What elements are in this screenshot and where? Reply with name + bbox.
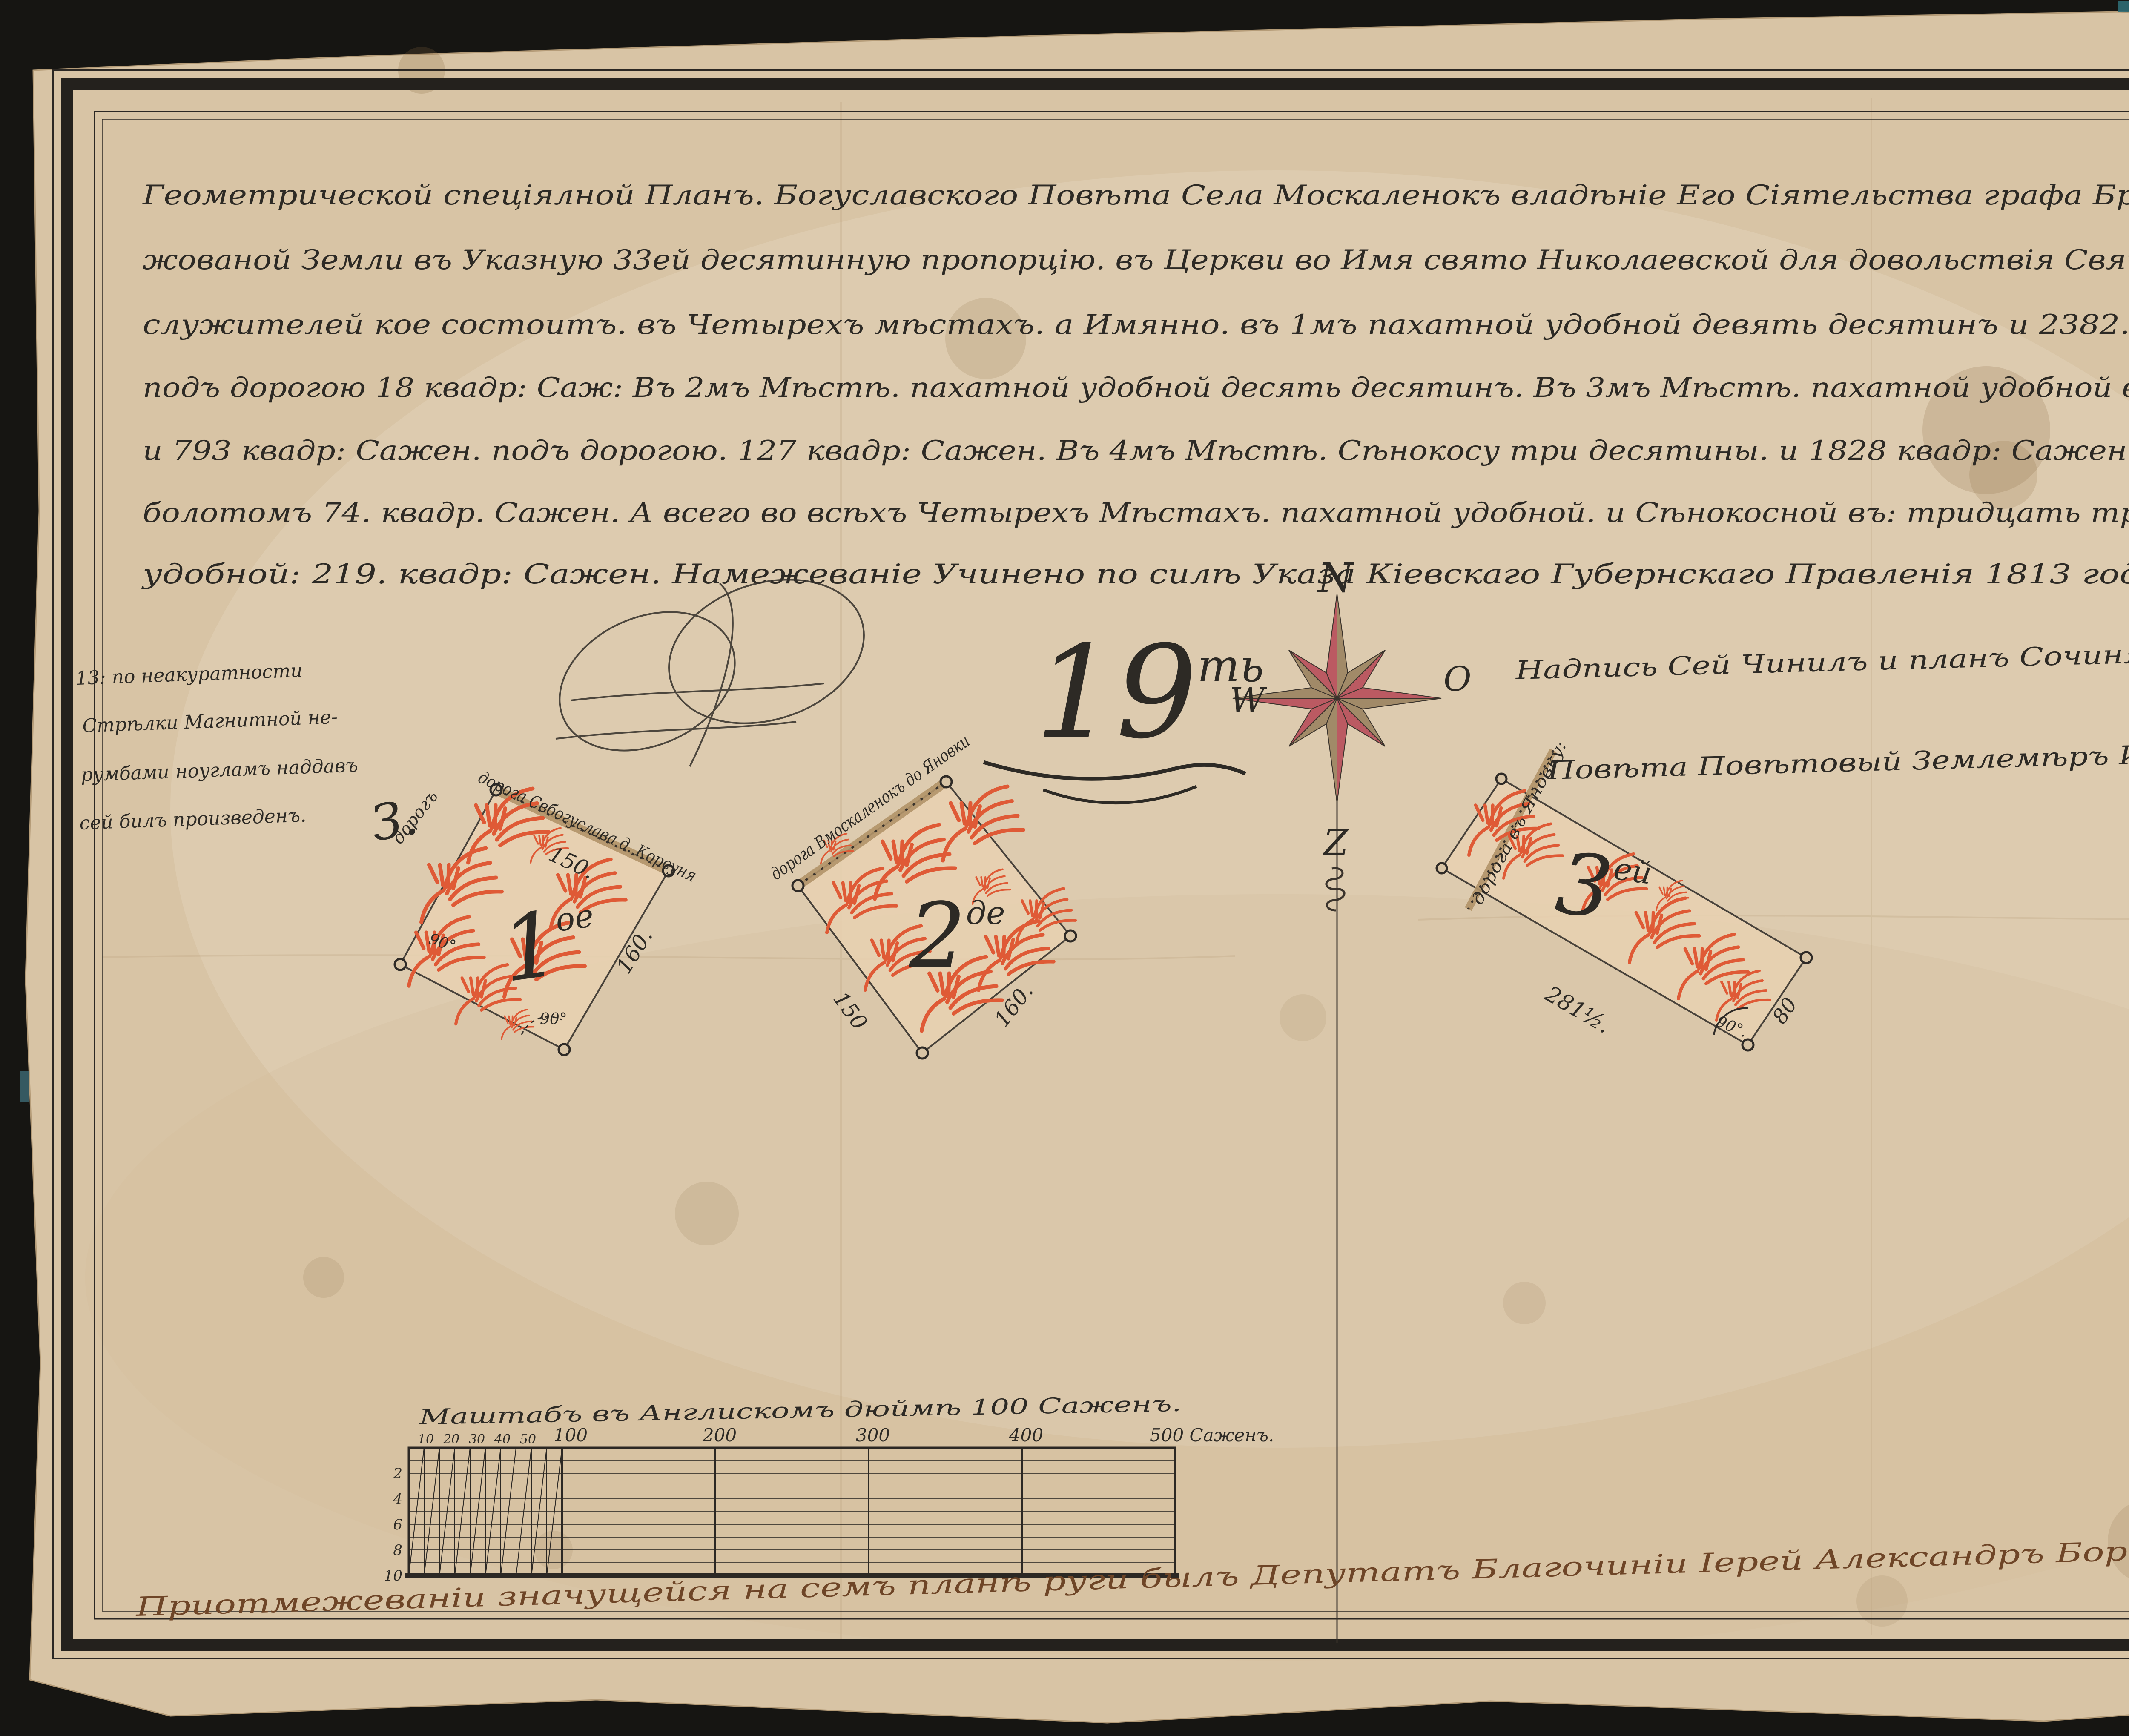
parcel-2-number-value: 2	[909, 884, 966, 988]
scale-tick-100: 100	[554, 1425, 588, 1446]
header-line-3: служителей кое состоитъ. въ Четырехъ мѣс…	[143, 309, 2129, 341]
scale-tick-300: 300	[856, 1425, 890, 1446]
parcel-1-angle-bottom: 90°	[540, 1010, 567, 1028]
scale-row-4: 4	[393, 1491, 402, 1508]
scale-tick-20: 20	[443, 1432, 459, 1447]
header-line-6: болотомъ 74. квадр. Сажен. А всего во вс…	[143, 497, 2129, 529]
scale-row-6: 6	[393, 1516, 402, 1533]
compass-east-label: O	[1443, 659, 1472, 699]
scale-tick-200: 200	[702, 1425, 737, 1446]
header-line-4: подъ дорогою 18 квадр: Саж: Въ 2мъ Мѣстѣ…	[143, 372, 2129, 404]
tape-fragment	[2118, 1, 2129, 12]
compass-south-label: Z	[1322, 822, 1349, 864]
figure-19-number: 19	[1035, 618, 1197, 767]
margin-note-flourish: З.	[367, 789, 422, 853]
scale-tick-50: 50	[520, 1432, 536, 1447]
scale-row-2: 2	[393, 1465, 402, 1482]
parcel-3-number-suffix: ей	[1612, 850, 1654, 891]
scale-tick-30: 30	[469, 1432, 485, 1447]
parcel-1-number-suffix: ое	[553, 897, 596, 939]
compass-west-label: W	[1230, 680, 1267, 720]
scanned-survey-plan: 4 Геометрической спеціялной Планъ. Богус…	[0, 0, 2129, 1736]
survey-plan-canvas: 4 Геометрической спеціялной Планъ. Богус…	[0, 0, 2129, 1736]
scale-tick-400: 400	[1009, 1425, 1043, 1446]
scale-row-8: 8	[393, 1542, 402, 1559]
header-line-7: удобной: 219. квадр: Сажен. Намежеваніе …	[141, 559, 2129, 590]
scale-tick-10: 10	[418, 1432, 434, 1447]
header-line-5: и 793 квадр: Сажен. подъ дорогою. 127 кв…	[143, 435, 2129, 467]
scale-row-10: 10	[384, 1567, 402, 1584]
tape-fragment	[20, 1071, 29, 1102]
scale-end-label: 500 Саженъ.	[1150, 1425, 1274, 1446]
parcel-2-number-suffix: де	[966, 894, 1005, 932]
scale-tick-40: 40	[494, 1432, 511, 1447]
compass-north-label: N	[1317, 555, 1354, 602]
header-line-2: жованой Земли въ Указную 33ей десятинную…	[143, 244, 2129, 276]
header-line-1: Геометрической спеціялной Планъ. Богусла…	[142, 180, 2129, 211]
